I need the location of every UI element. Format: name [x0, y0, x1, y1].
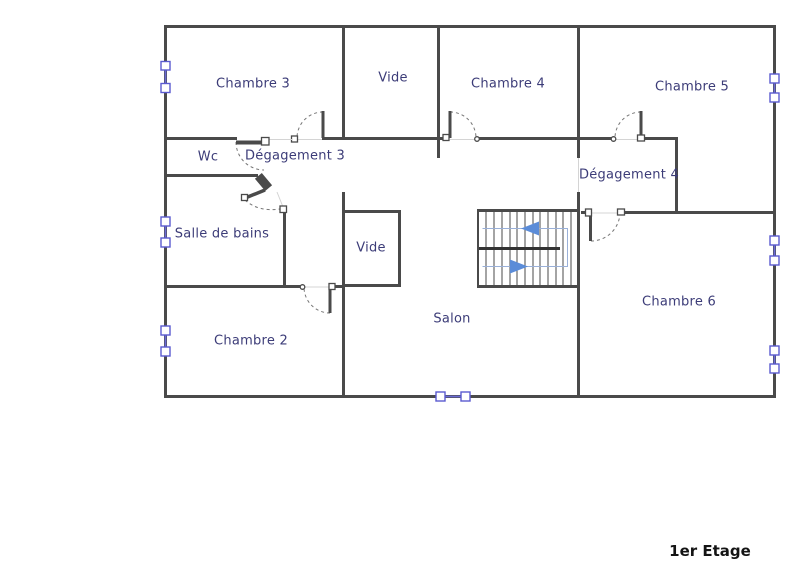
stair-left-edge — [477, 209, 479, 288]
stair-mid-landing-edge — [479, 247, 560, 250]
wall-sdb-right — [283, 212, 286, 287]
wall-chambre5-corridor-a — [580, 137, 613, 140]
window-chambre-6-upper — [770, 236, 779, 265]
wall-vide-lower-bottom — [342, 284, 401, 287]
room-label-chambre-6: Chambre 6 — [642, 295, 716, 310]
room-label-salle-de-bains: Salle de bains — [175, 227, 269, 242]
wall-wc-sdb — [167, 174, 258, 177]
room-label-vide-upper: Vide — [378, 71, 408, 86]
wall-chambre3-stub — [322, 137, 345, 140]
outer-wall-top — [164, 25, 776, 28]
room-label-chambre-5: Chambre 5 — [655, 80, 729, 95]
stair-bottom-edge — [477, 285, 580, 288]
room-label-chambre-4: Chambre 4 — [471, 77, 545, 92]
wall-chambre4-corridor — [477, 137, 580, 140]
door-chambre-3 — [292, 111, 325, 142]
room-label-degagement-4: Dégagement 4 — [579, 168, 679, 183]
window-chambre-2 — [161, 326, 170, 356]
window-salle-de-bains — [161, 217, 170, 247]
wall-chambre6-top — [620, 211, 775, 214]
wall-vide-lower-right — [398, 212, 401, 286]
door-chambre-2 — [300, 284, 335, 314]
door-chambre-6 — [586, 209, 625, 241]
room-label-chambre-3: Chambre 3 — [216, 77, 290, 92]
wall-chambre5-corridor-b — [641, 137, 678, 140]
window-chambre-3 — [161, 62, 170, 93]
window-chambre-5 — [770, 74, 779, 102]
room-label-degagement-3: Dégagement 3 — [245, 149, 345, 164]
door-chambre-5 — [611, 111, 644, 141]
wall-vide-corridor — [345, 137, 444, 140]
room-label-salon: Salon — [433, 312, 470, 327]
wall-vide-lower-top — [342, 210, 401, 213]
stair-top-edge — [477, 209, 580, 212]
window-salon-bottom — [436, 392, 470, 401]
room-label-wc: Wc — [198, 150, 219, 165]
staircase — [477, 209, 580, 288]
wall-chambre2-salon — [342, 192, 345, 395]
room-label-chambre-2: Chambre 2 — [214, 334, 288, 349]
door-chambre-4 — [443, 111, 479, 141]
window-chambre-6-lower — [770, 346, 779, 373]
wall-chambre3-vide — [342, 28, 345, 138]
floor-title: 1er Etage — [669, 542, 751, 560]
stair-up-arrow-icon — [521, 222, 539, 236]
wall-chambre3-wc — [167, 137, 237, 140]
room-label-vide-lower: Vide — [356, 241, 386, 256]
door-salle-de-bains — [242, 173, 287, 213]
wall-sdb-chambre2 — [167, 285, 302, 288]
floor-plan: Chambre 3 Vide Chambre 4 Chambre 5 Wc Dé… — [0, 0, 800, 561]
wall-salon-chambre6 — [577, 192, 580, 395]
